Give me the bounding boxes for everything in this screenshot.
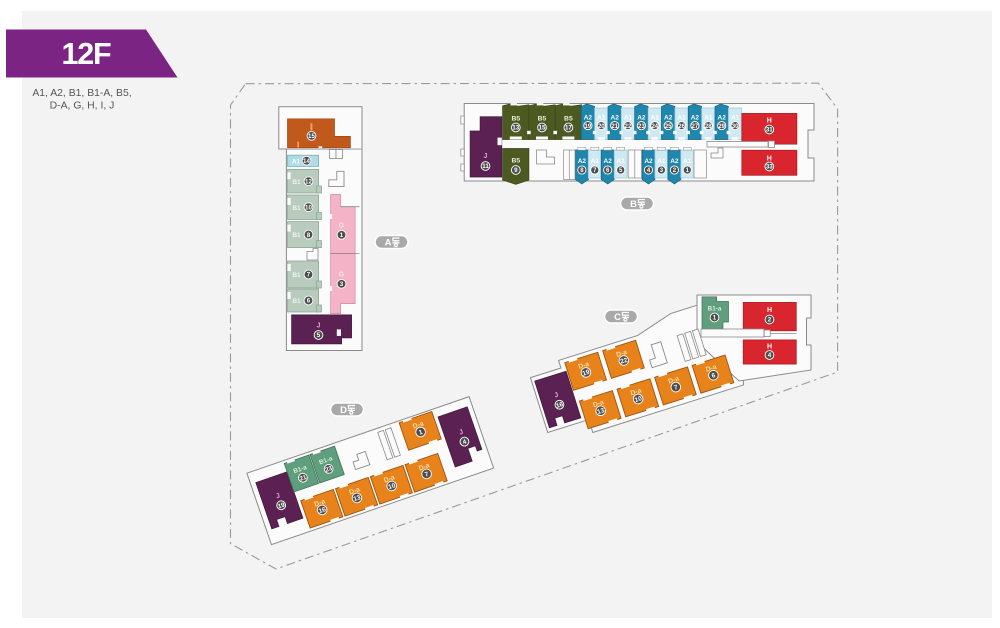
- svg-text:G: G: [339, 223, 345, 230]
- svg-text:28: 28: [705, 124, 712, 130]
- svg-text:A2: A2: [604, 158, 613, 165]
- svg-text:A1: A1: [651, 114, 660, 121]
- svg-text:A2: A2: [584, 114, 593, 121]
- svg-text:27: 27: [692, 124, 699, 130]
- svg-text:A2: A2: [578, 158, 587, 165]
- svg-text:21: 21: [611, 124, 618, 130]
- svg-text:29: 29: [718, 124, 725, 130]
- svg-text:22: 22: [625, 124, 632, 130]
- svg-text:9: 9: [514, 167, 518, 174]
- svg-text:J: J: [484, 153, 488, 160]
- svg-text:19: 19: [585, 124, 592, 130]
- svg-text:A1: A1: [677, 114, 686, 121]
- svg-text:B: B: [630, 199, 637, 210]
- svg-text:17: 17: [565, 125, 572, 132]
- svg-text:B5: B5: [564, 116, 573, 123]
- svg-text:A2: A2: [718, 114, 727, 121]
- svg-text:15: 15: [539, 125, 546, 132]
- svg-text:B1: B1: [292, 205, 301, 212]
- svg-text:11: 11: [482, 163, 489, 170]
- svg-text:A1: A1: [704, 114, 713, 121]
- svg-text:25: 25: [665, 124, 672, 130]
- svg-text:1: 1: [340, 232, 344, 239]
- svg-text:B5: B5: [511, 116, 520, 123]
- svg-text:A1: A1: [617, 158, 626, 165]
- svg-text:15: 15: [308, 133, 315, 140]
- svg-text:A2: A2: [644, 158, 653, 165]
- svg-text:4: 4: [768, 352, 772, 359]
- svg-text:7: 7: [307, 272, 311, 279]
- svg-text:A1: A1: [597, 114, 606, 121]
- svg-text:3: 3: [340, 281, 344, 288]
- svg-text:H: H: [767, 118, 772, 125]
- svg-text:A1: A1: [292, 159, 301, 166]
- svg-text:B5: B5: [538, 116, 547, 123]
- svg-text:D-A, G, H, I, J: D-A, G, H, I, J: [50, 100, 115, 111]
- svg-text:A2: A2: [670, 158, 679, 165]
- svg-text:B1: B1: [292, 272, 301, 279]
- svg-text:12F: 12F: [62, 37, 112, 71]
- svg-text:C: C: [614, 312, 621, 323]
- svg-text:8: 8: [307, 232, 311, 239]
- svg-text:13: 13: [512, 125, 519, 132]
- svg-text:24: 24: [651, 124, 658, 130]
- svg-text:H: H: [767, 307, 772, 314]
- svg-text:A2: A2: [637, 114, 646, 121]
- svg-text:6: 6: [307, 298, 311, 305]
- svg-text:A2: A2: [664, 114, 673, 121]
- svg-text:A1: A1: [683, 158, 692, 165]
- svg-text:B1: B1: [292, 232, 301, 239]
- svg-text:H: H: [767, 156, 772, 163]
- svg-text:26: 26: [678, 124, 685, 130]
- svg-text:A2: A2: [611, 114, 620, 121]
- svg-text:A1: A1: [731, 114, 740, 121]
- svg-text:J: J: [317, 323, 321, 330]
- svg-text:A1: A1: [624, 114, 633, 121]
- svg-text:5: 5: [317, 332, 321, 339]
- svg-text:B5: B5: [511, 158, 520, 165]
- svg-text:A2: A2: [691, 114, 700, 121]
- svg-text:B1: B1: [292, 179, 301, 186]
- svg-text:G: G: [339, 272, 345, 279]
- svg-text:B1-a: B1-a: [708, 306, 722, 313]
- svg-text:14: 14: [303, 158, 310, 165]
- svg-text:B1: B1: [292, 298, 301, 305]
- svg-text:2: 2: [768, 317, 772, 324]
- svg-text:A: A: [385, 237, 392, 248]
- svg-text:10: 10: [305, 205, 312, 212]
- svg-text:D: D: [340, 405, 347, 416]
- svg-text:30: 30: [732, 124, 739, 130]
- svg-text:23: 23: [638, 124, 645, 130]
- svg-text:1: 1: [713, 315, 717, 322]
- svg-text:20: 20: [598, 124, 605, 130]
- svg-text:H: H: [767, 344, 772, 351]
- svg-text:31: 31: [766, 127, 773, 134]
- svg-text:A1: A1: [591, 158, 600, 165]
- svg-text:12: 12: [305, 178, 312, 185]
- svg-text:33: 33: [766, 164, 773, 171]
- svg-text:A1, A2, B1, B1-A, B5,: A1, A2, B1, B1-A, B5,: [32, 88, 131, 99]
- svg-text:A1: A1: [657, 158, 666, 165]
